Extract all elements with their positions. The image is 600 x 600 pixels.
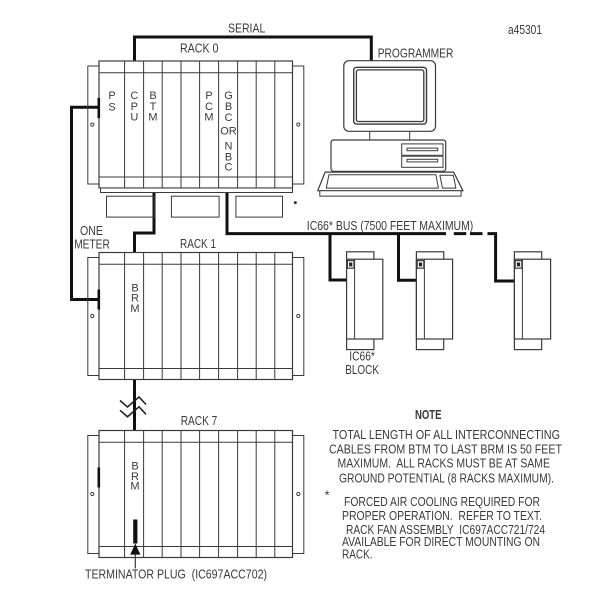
svg-text:U: U [130, 112, 138, 124]
svg-text:BLOCK: BLOCK [345, 363, 379, 377]
svg-text:MAXIMUM. ALL RACKS MUST BE AT: MAXIMUM. ALL RACKS MUST BE AT SAME [338, 457, 551, 471]
svg-text:S: S [108, 101, 115, 113]
svg-text:ONE: ONE [80, 224, 103, 238]
svg-text:TOTAL LENGTH OF ALL INTERCONNE: TOTAL LENGTH OF ALL INTERCONNECTING [333, 428, 561, 442]
svg-text:M: M [148, 112, 157, 124]
svg-text:TERMINATOR PLUG (IC697ACC702): TERMINATOR PLUG (IC697ACC702) [85, 568, 267, 582]
svg-text:RACK 1: RACK 1 [180, 237, 216, 251]
svg-text:CABLES FROM BTM TO LAST BRM IS: CABLES FROM BTM TO LAST BRM IS 50 FEET [329, 443, 562, 457]
svg-text:NOTE: NOTE [415, 408, 442, 422]
svg-text:M: M [130, 480, 139, 492]
svg-text:RACK.: RACK. [342, 548, 373, 562]
svg-text:C: C [225, 162, 233, 174]
svg-text:M: M [204, 112, 213, 124]
svg-text:IC66* BUS (7500 FEET MAXIMUM): IC66* BUS (7500 FEET MAXIMUM) [307, 219, 474, 233]
svg-text:PROGRAMMER: PROGRAMMER [378, 46, 454, 60]
svg-text:RACK 7: RACK 7 [181, 414, 218, 428]
svg-text:M: M [130, 303, 139, 315]
svg-text:METER: METER [74, 237, 110, 251]
svg-text:C: C [225, 112, 233, 124]
svg-text:P: P [108, 90, 115, 102]
svg-text:IC66*: IC66* [349, 349, 375, 363]
svg-text:PROPER OPERATION. REFER TO TE: PROPER OPERATION. REFER TO TEXT. [342, 509, 542, 523]
svg-text:OR: OR [220, 125, 237, 137]
svg-text:GROUND POTENTIAL (8 RACKS MAXI: GROUND POTENTIAL (8 RACKS MAXIMUM). [339, 472, 554, 486]
svg-text:FORCED AIR COOLING REQUIRED FO: FORCED AIR COOLING REQUIRED FOR [344, 495, 540, 509]
svg-text:SERIAL: SERIAL [228, 21, 265, 35]
svg-text:a45301: a45301 [508, 23, 542, 37]
svg-text:RACK 0: RACK 0 [180, 42, 218, 56]
svg-text:*: * [325, 488, 330, 503]
